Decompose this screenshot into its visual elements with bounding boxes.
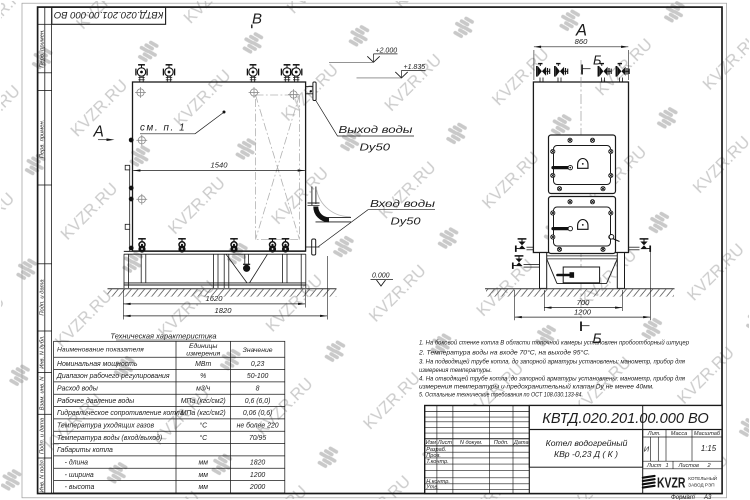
svg-text:Выход воды: Выход воды xyxy=(339,125,413,136)
svg-text:Вход воды: Вход воды xyxy=(370,199,435,210)
svg-text:- высота: - высота xyxy=(57,484,94,491)
svg-text:КВТД.020.201.00.000 ВО: КВТД.020.201.00.000 ВО xyxy=(542,411,709,427)
svg-text:0,6 (6,0): 0,6 (6,0) xyxy=(245,398,271,405)
svg-text:1. На боковой стенке котла В: 1. На боковой стенке котла В области топ… xyxy=(419,339,689,347)
svg-text:Температура воды (вход/выход): Температура воды (вход/выход) xyxy=(57,434,162,442)
svg-text:измерения температуры.: измерения температуры. xyxy=(419,367,492,374)
svg-text:+2.000: +2.000 xyxy=(376,48,398,55)
svg-text:KVZR: KVZR xyxy=(657,475,686,492)
svg-text:Инв. N подл.: Инв. N подл. xyxy=(39,459,45,493)
svg-text:А3: А3 xyxy=(703,495,712,500)
svg-text:Взам. инв. N: Взам. инв. N xyxy=(39,376,45,411)
svg-text:%: % xyxy=(200,373,206,380)
svg-text:Лит.: Лит. xyxy=(647,431,661,437)
svg-text:70/95: 70/95 xyxy=(249,435,266,442)
svg-text:Масса: Масса xyxy=(671,431,688,437)
svg-text:не более 220: не более 220 xyxy=(237,421,279,429)
svg-text:°С: °С xyxy=(199,434,208,442)
svg-text:Наименование показателя: Наименование показателя xyxy=(57,347,144,354)
svg-text:мм: мм xyxy=(198,472,208,479)
svg-text:МВт: МВт xyxy=(195,361,211,368)
svg-text:Расход воды: Расход воды xyxy=(57,384,98,392)
svg-text:Лист: Лист xyxy=(646,463,662,469)
svg-text:КВТД.020.201.00.000 ВО: КВТД.020.201.00.000 ВО xyxy=(53,9,163,20)
svg-text:3. На подводящей трубе котла,: 3. На подводящей трубе котла, до запорно… xyxy=(419,358,685,366)
svg-text:Габариты котла: Габариты котла xyxy=(57,446,113,454)
svg-text:МПа (кгс/см2): МПа (кгс/см2) xyxy=(181,410,226,417)
svg-text:Утв.: Утв. xyxy=(425,485,439,491)
svg-text:КОТЕЛЬНЫЙ: КОТЕЛЬНЫЙ xyxy=(688,474,717,481)
svg-text:1200: 1200 xyxy=(574,307,592,316)
svg-text:Техническая характеристика: Техническая характеристика xyxy=(110,331,216,340)
svg-text:В: В xyxy=(252,11,262,28)
svg-text:Подп. и дата: Подп. и дата xyxy=(39,417,45,454)
svg-text:Лист: Лист xyxy=(437,440,453,446)
svg-text:- длина: - длина xyxy=(57,459,88,467)
svg-text:МПа (кгс/см2): МПа (кгс/см2) xyxy=(181,398,226,405)
svg-text:Листов: Листов xyxy=(678,463,699,469)
svg-text:Формат: Формат xyxy=(671,495,695,500)
svg-text:Дата: Дата xyxy=(513,440,529,446)
svg-text:5. Остальные технические треб: 5. Остальные технические требования по О… xyxy=(419,390,583,398)
svg-text:Масштаб: Масштаб xyxy=(694,431,721,437)
svg-text:Пров.: Пров. xyxy=(426,453,441,459)
svg-text:Т.контр.: Т.контр. xyxy=(426,459,449,465)
svg-text:1: 1 xyxy=(666,463,669,469)
svg-text:2. Температура воды на входе: 2. Температура воды на входе 70°С, на вы… xyxy=(418,348,590,356)
svg-text:1540: 1540 xyxy=(211,160,229,169)
svg-text:Подп.: Подп. xyxy=(494,440,509,446)
svg-text:50-100: 50-100 xyxy=(247,373,269,380)
svg-text:0,23: 0,23 xyxy=(251,361,265,368)
svg-text:мм: мм xyxy=(198,484,208,491)
svg-text:Номинальная мощность: Номинальная мощность xyxy=(57,361,138,368)
svg-text:Диапазон рабочего регулировани: Диапазон рабочего регулирования xyxy=(56,372,170,380)
svg-text:N докум.: N докум. xyxy=(460,440,483,446)
svg-text:измерения температуры и предох: измерения температуры и предохранительны… xyxy=(419,383,654,391)
svg-text:мм: мм xyxy=(198,460,208,467)
svg-text:1:15: 1:15 xyxy=(701,444,717,453)
svg-text:Dy50: Dy50 xyxy=(360,143,391,154)
svg-text:ЗАВОД РЭП: ЗАВОД РЭП xyxy=(688,483,714,488)
svg-text:1820: 1820 xyxy=(215,306,233,315)
svg-text:1820: 1820 xyxy=(250,460,265,467)
svg-text:Перв. примен.: Перв. примен. xyxy=(39,120,45,159)
svg-text:м3/ч: м3/ч xyxy=(196,385,210,392)
svg-text:см. п. 1: см. п. 1 xyxy=(140,123,186,134)
svg-text:Инв. N дубл.: Инв. N дубл. xyxy=(39,335,45,369)
svg-text:8: 8 xyxy=(256,385,260,392)
svg-text:Перв. примен.: Перв. примен. xyxy=(39,29,45,68)
svg-text:700: 700 xyxy=(577,298,590,307)
svg-text:Котел водогрейный: Котел водогрейный xyxy=(546,438,628,448)
svg-text:°С: °С xyxy=(199,421,208,429)
svg-text:Температура уходящих газов: Температура уходящих газов xyxy=(57,421,155,429)
svg-text:Единицы: Единицы xyxy=(189,342,217,350)
svg-text:1200: 1200 xyxy=(250,472,265,479)
svg-text:Б: Б xyxy=(593,53,602,68)
svg-text:Подп. и дата: Подп. и дата xyxy=(39,279,45,316)
svg-text:Рабочее давление воды: Рабочее давление воды xyxy=(57,397,134,405)
svg-text:860: 860 xyxy=(575,37,588,46)
svg-text:А: А xyxy=(93,124,104,141)
svg-text:Значение: Значение xyxy=(243,347,273,354)
svg-text:И: И xyxy=(644,445,650,454)
svg-text:КВр -0,23 Д ( К ): КВр -0,23 Д ( К ) xyxy=(554,449,618,459)
svg-text:измерения: измерения xyxy=(186,350,220,357)
svg-text:0.000: 0.000 xyxy=(372,273,390,280)
svg-text:Изм: Изм xyxy=(426,440,437,446)
svg-text:Гидравлическое сопротивление к: Гидравлическое сопротивление котла xyxy=(57,409,184,417)
svg-text:0,06 (0,6): 0,06 (0,6) xyxy=(243,410,273,417)
svg-text:2000: 2000 xyxy=(249,484,265,491)
svg-text:Dy50: Dy50 xyxy=(391,217,421,228)
svg-text:4. На отводящей трубе котла ,: 4. На отводящей трубе котла ,до запорной… xyxy=(419,374,685,382)
svg-text:- ширина: - ширина xyxy=(57,472,94,479)
svg-text:1620: 1620 xyxy=(206,294,224,303)
